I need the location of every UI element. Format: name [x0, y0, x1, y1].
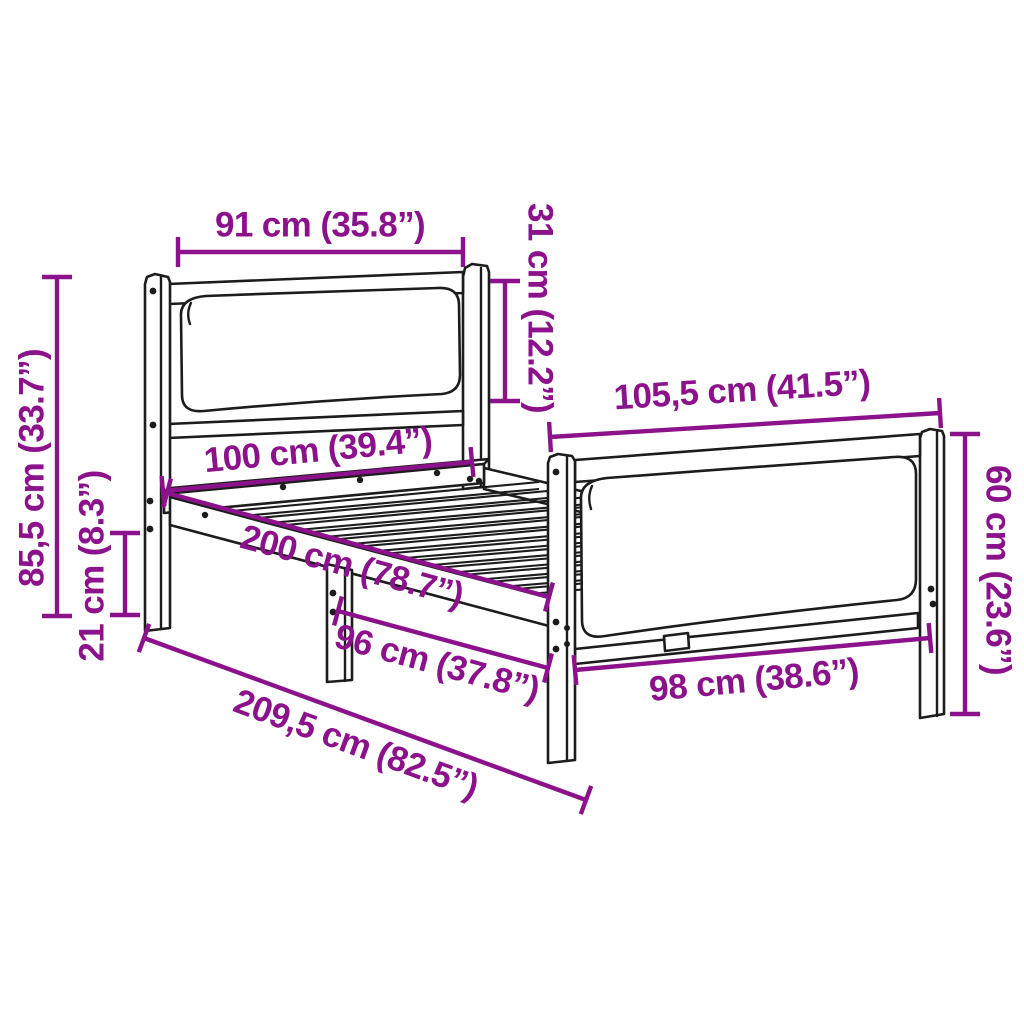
footboard-right-post [920, 429, 944, 718]
headboard-left-post [145, 274, 170, 631]
bed-frame-dimension-diagram: 91 cm (35.8”) 31 cm (12.2”) 85,5 cm (33.… [0, 0, 1024, 1024]
dimension-label-support-span: 96 cm (37.8”) [331, 617, 544, 710]
footboard-cushion [581, 457, 916, 637]
dimension-label-footboard-height: 60 cm (23.6”) [979, 465, 1018, 675]
footboard [548, 429, 944, 763]
dimension-label-headboard-width: 91 cm (35.8”) [215, 206, 425, 245]
dimension-diagram-canvas: 91 cm (35.8”) 31 cm (12.2”) 85,5 cm (33.… [0, 0, 1024, 1024]
dimension-label-headboard-height: 85,5 cm (33.7”) [13, 349, 52, 587]
footboard-center-bracket [664, 633, 689, 651]
dimension-label-total-length: 209,5 cm (82.5”) [229, 682, 484, 807]
dimension-label-footboard-width: 105,5 cm (41.5”) [613, 363, 872, 418]
headboard-right-post [463, 264, 489, 489]
dimension-front-leg-height: 21 cm (8.3”) [73, 470, 141, 661]
dimension-headboard-panel-height: 31 cm (12.2”) [490, 203, 560, 413]
headboard-cushion [181, 288, 460, 411]
dimension-footboard-height: 60 cm (23.6”) [950, 434, 1018, 714]
footboard-left-post [548, 454, 575, 763]
dimension-label-front-leg-height: 21 cm (8.3”) [73, 470, 112, 661]
dimension-label-headboard-panel-height: 31 cm (12.2”) [521, 203, 560, 413]
dimension-headboard-height: 85,5 cm (33.7”) [13, 277, 73, 616]
dimension-headboard-width: 91 cm (35.8”) [178, 206, 463, 268]
